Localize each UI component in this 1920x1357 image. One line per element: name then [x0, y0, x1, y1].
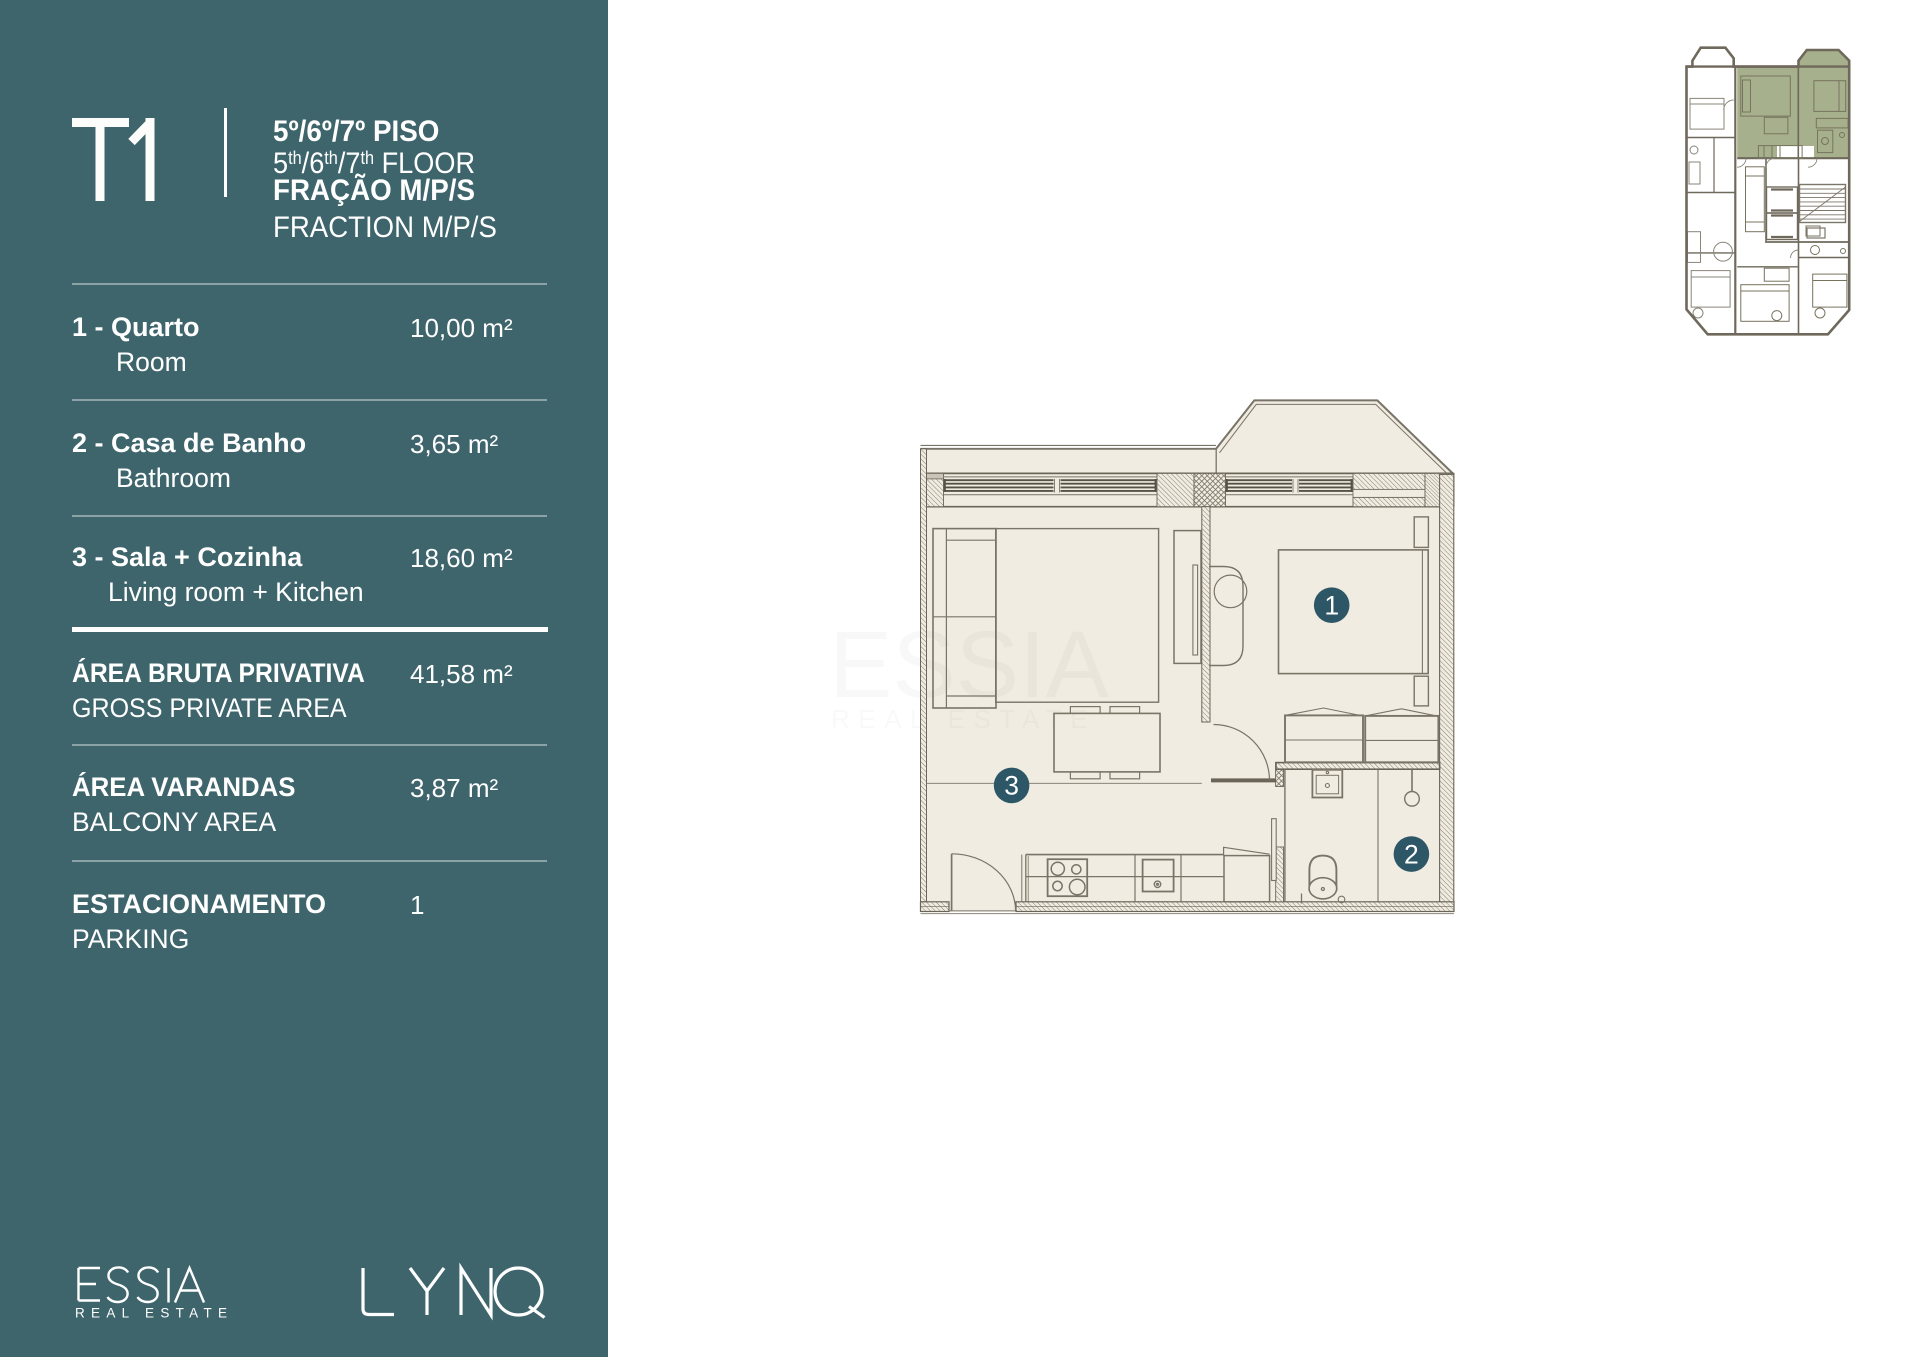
svg-text:2: 2	[1404, 839, 1419, 869]
svg-text:1: 1	[1324, 591, 1339, 621]
svg-text:3: 3	[1004, 771, 1019, 801]
